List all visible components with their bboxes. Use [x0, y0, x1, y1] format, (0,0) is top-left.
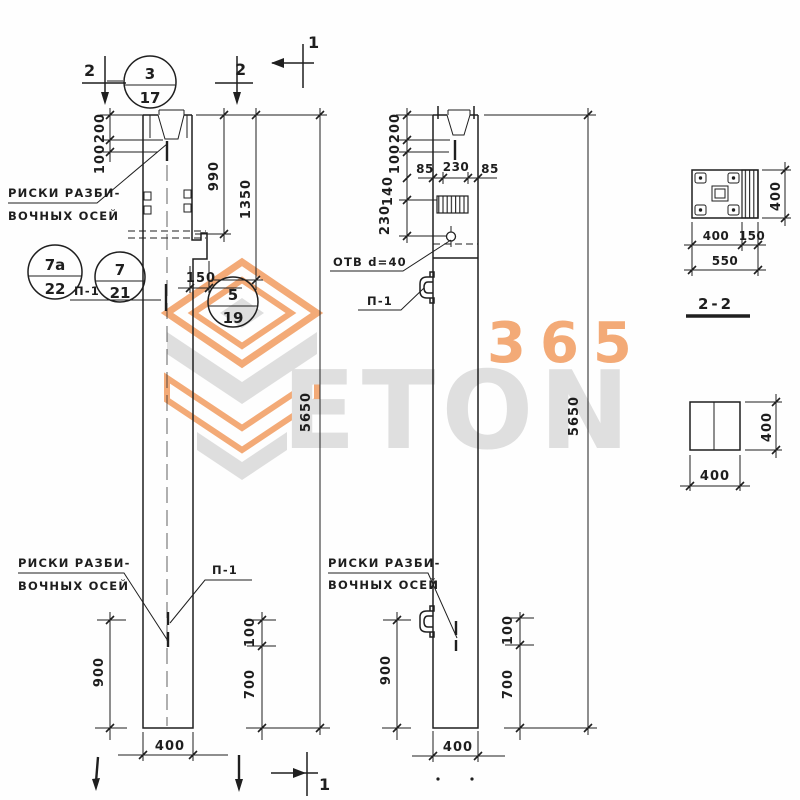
dim-100: 100 [243, 617, 258, 647]
cut-mark-2-right-label: 2 [235, 60, 246, 79]
callout-bottom: 19 [223, 309, 244, 327]
dim-990: 990 [207, 161, 222, 191]
callout-bottom: 21 [110, 284, 131, 302]
cut-arrow-down-icon [235, 779, 243, 792]
blueprint-page: ETON 365 200 100 990 1350 5650 1 [0, 0, 800, 800]
blueprint-canvas: ETON 365 200 100 990 1350 5650 1 [0, 0, 800, 800]
dim-400: 400 [155, 739, 185, 754]
cut-arrow-down-icon [233, 92, 241, 105]
bracket-p1-upper [420, 272, 434, 303]
dim-550: 550 [712, 254, 739, 268]
riski-line2: ВОЧНЫХ ОСЕЙ [18, 578, 129, 593]
callout-top: 5 [228, 286, 238, 304]
dim-85: 85 [416, 162, 434, 176]
dim-200: 200 [93, 113, 108, 143]
riski-label-bottom-left: РИСКИ РАЗБИ- ВОЧНЫХ ОСЕЙ [18, 556, 168, 641]
dim-700: 700 [243, 669, 258, 699]
callout-3-17: 3 17 [107, 56, 176, 108]
cut-stroke [96, 757, 98, 782]
dim-200: 200 [388, 113, 403, 143]
cut-mark-2-left-label: 2 [84, 61, 95, 80]
p1-text: П-1 [367, 294, 393, 308]
cut-arrow-down-icon [101, 92, 109, 105]
riski-label-bottom-middle: РИСКИ РАЗБИ- ВОЧНЫХ ОСЕЙ [328, 556, 457, 638]
dim-100: 100 [388, 144, 403, 174]
dim-230: 230 [443, 160, 470, 174]
callout-bottom: 17 [140, 89, 161, 107]
watermark: ETON 365 [167, 262, 646, 480]
dim-700: 700 [501, 669, 516, 699]
p1-label-middle: П-1 [358, 288, 424, 310]
shaft-cross-section: 400 400 [680, 394, 782, 491]
hole-d40 [447, 232, 456, 241]
callout-top: 7а [45, 256, 66, 274]
corner-rebar-plates [695, 173, 739, 215]
p1-text: П-1 [74, 284, 100, 298]
dim-900: 900 [379, 655, 394, 685]
dim-5650: 5650 [299, 392, 314, 432]
dim-1350: 1350 [239, 179, 254, 219]
dim-230: 230 [378, 205, 393, 235]
dim-400: 400 [443, 740, 473, 755]
fork-top-notch [447, 110, 470, 135]
cut-arrow-right-icon [293, 768, 306, 778]
riski-line1: РИСКИ РАЗБИ- [18, 556, 131, 570]
dim-100: 100 [93, 144, 108, 174]
dim-150: 150 [186, 271, 216, 286]
dim-400: 400 [703, 229, 730, 243]
rebar-stubs [438, 106, 474, 119]
embedded-plate-hatched [437, 196, 468, 213]
bracket-p1-lower [420, 606, 434, 637]
dim-5650: 5650 [567, 396, 582, 436]
callout-7-21: 7 21 [95, 252, 145, 302]
center-duct-inner [715, 189, 725, 198]
dim-100: 100 [501, 615, 516, 645]
leader-line [170, 580, 252, 623]
dim-85: 85 [481, 162, 499, 176]
p1-text: П-1 [212, 563, 238, 577]
callout-top: 7 [115, 261, 125, 279]
dim-140: 140 [381, 176, 396, 206]
dim-400: 400 [769, 181, 784, 211]
cut-mark-1-top-label: 1 [308, 33, 319, 52]
edge-embed-marks [144, 190, 191, 214]
dim-150: 150 [739, 229, 766, 243]
foot-dot [470, 777, 473, 780]
section-outline [690, 402, 740, 450]
riski-line2: ВОЧНЫХ ОСЕЙ [8, 208, 119, 223]
riski-line1: РИСКИ РАЗБИ- [328, 556, 441, 570]
dim-400: 400 [700, 469, 730, 484]
center-duct-outer [712, 186, 728, 201]
hatched-strip [742, 170, 758, 218]
section-2-2-title: 2-2 [698, 295, 734, 313]
cut-mark-1-bottom-label: 1 [319, 775, 330, 794]
p1-label-bottom-left: П-1 [170, 563, 252, 623]
callout-top: 3 [145, 65, 155, 83]
section-2-2: 400 400 150 550 2-2 [684, 162, 791, 316]
cut-arrow-down-icon [92, 778, 100, 791]
callout-bottom: 22 [45, 280, 66, 298]
foot-dot [436, 777, 439, 780]
cut-arrow-left-icon [271, 58, 284, 68]
otv-text: ОТВ d=40 [333, 255, 407, 269]
dim-900: 900 [92, 657, 107, 687]
watermark-number-text: 365 [487, 311, 646, 376]
riski-line2: ВОЧНЫХ ОСЕЙ [328, 577, 439, 592]
cut-mark-2-right [215, 56, 253, 95]
dim-400: 400 [760, 412, 775, 442]
